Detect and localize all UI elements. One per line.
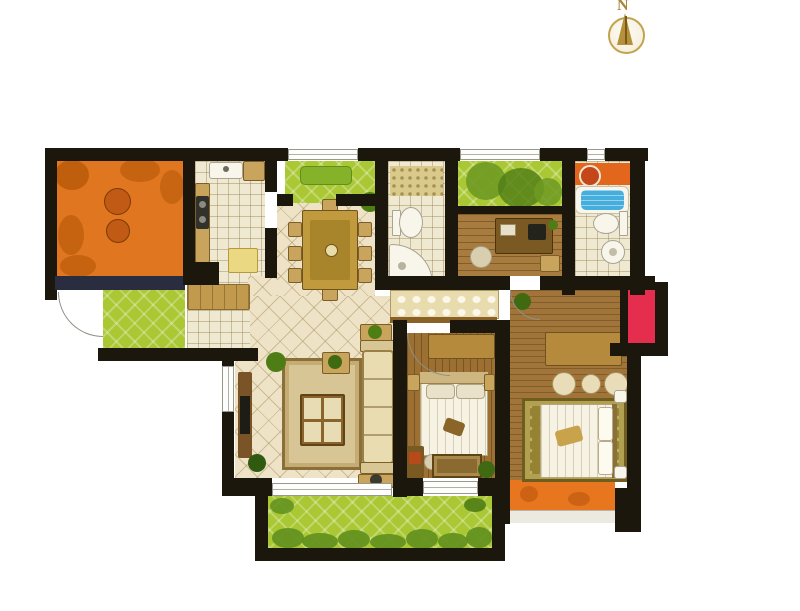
shower-drain [398, 262, 406, 270]
terrace-foliage [60, 255, 96, 277]
shower-tile-band [390, 166, 443, 196]
hedge [270, 498, 294, 514]
washbasin-drain [609, 248, 617, 256]
window [288, 149, 358, 160]
window [222, 366, 234, 412]
nightstand [614, 466, 627, 479]
wall-master-right [627, 344, 641, 492]
dining-chair [288, 268, 302, 283]
service-balcony [628, 290, 655, 343]
dining-chair [288, 246, 302, 261]
floor-plan-canvas: N [0, 0, 800, 611]
computer-monitor [528, 224, 546, 240]
north-compass: N [600, 0, 652, 62]
pillow [598, 441, 613, 475]
terrace-foliage [58, 215, 84, 255]
wall-mid-horizontal [375, 276, 510, 290]
rattan-chair [104, 188, 131, 215]
garden-tree [534, 178, 562, 206]
vanity-basin [579, 165, 601, 187]
wall-kitchen-bottom [183, 262, 219, 285]
wall-dining-balcony-stub [336, 194, 375, 206]
window [460, 149, 540, 160]
master-balcony-leaf [568, 492, 590, 506]
wall-dining-balcony-stub [277, 194, 293, 206]
master-balcony-leaf [520, 486, 538, 502]
entry-floor [187, 310, 250, 348]
wall-dining-right [375, 148, 388, 290]
dining-chair [358, 222, 372, 237]
stove-burner [199, 201, 206, 208]
wall-masterbalcony-left [495, 478, 510, 524]
hedge [272, 528, 304, 548]
wall-mid-horizontal [540, 276, 655, 290]
nightstand [614, 390, 627, 403]
dining-chair [358, 268, 372, 283]
wall-living-left [222, 412, 234, 480]
toilet-bowl [399, 207, 423, 238]
bathtub-water [581, 190, 624, 210]
pillow [598, 407, 613, 441]
wall-study-bath [562, 148, 575, 295]
compass-north-label: N [617, 0, 629, 15]
window-living-balcony [272, 483, 392, 496]
sofa [362, 350, 394, 464]
toilet-bowl [593, 213, 619, 234]
kitchen-passage [248, 276, 277, 296]
pillow [426, 384, 455, 399]
hedge [466, 527, 492, 548]
hallway [390, 290, 499, 319]
wall-kitchen-right [265, 228, 277, 278]
wall-top [45, 148, 288, 161]
stove-burner [199, 216, 206, 223]
terrace-foliage [120, 158, 160, 182]
kitchen-table [228, 248, 258, 273]
flower-bed [103, 290, 185, 348]
terrace-foliage [55, 160, 89, 190]
wall-bedroom2-right [495, 320, 510, 478]
hedge [406, 529, 438, 549]
window [423, 481, 478, 494]
living-plant [266, 352, 286, 372]
wall-service-left [620, 288, 628, 343]
rattan-chair [106, 219, 130, 243]
north-arrow-shadow [625, 16, 627, 44]
wall-living-left [222, 348, 234, 366]
balcony-plant [464, 498, 486, 512]
corner-table-plant [328, 355, 342, 369]
desk-papers [500, 224, 516, 236]
desk-plant [548, 220, 558, 230]
living-plant [248, 454, 266, 472]
wall-entry-bottom [98, 348, 258, 361]
side-table-plant [368, 325, 382, 339]
study-cabinet [540, 255, 560, 272]
coffee-table-panes [304, 398, 341, 442]
wall-bedroom2-bottom [393, 478, 423, 496]
bed-valance [420, 372, 488, 384]
nightstand [407, 374, 420, 391]
window [587, 149, 605, 160]
terrace-foliage [160, 170, 184, 204]
pillow [456, 384, 485, 399]
dining-chair [358, 246, 372, 261]
wall-bedroom2-left [393, 320, 407, 497]
bedroom-plant [478, 461, 495, 478]
wall-garden-study [458, 206, 562, 214]
kitchen-counter-top [243, 161, 265, 181]
terrace-rail [55, 276, 185, 290]
office-chair [470, 246, 492, 268]
wall-bath-right [445, 148, 458, 290]
shoe-cabinet [187, 284, 250, 310]
toilet-tank [619, 211, 628, 236]
pouf [581, 374, 601, 394]
balcony-bench [300, 166, 352, 185]
desk-accent [409, 452, 421, 464]
wall-service-bottom [610, 343, 668, 356]
hedge [338, 530, 370, 549]
pouf [552, 372, 576, 396]
master-balcony-sill [508, 510, 615, 523]
bedroom-rug [432, 454, 482, 478]
wall-masterbalcony-right [615, 488, 641, 532]
wall-right-outer [630, 148, 645, 295]
wall-balcony-bottom [255, 548, 505, 561]
entry-door-arc [58, 292, 103, 337]
kitchen-faucet [223, 166, 229, 172]
nightstand [484, 374, 495, 391]
dining-chair [288, 222, 302, 237]
wall-kitchen-right [265, 158, 277, 192]
dining-centerpiece [325, 244, 338, 257]
tv [240, 396, 250, 434]
sofa-armrest [360, 462, 396, 474]
